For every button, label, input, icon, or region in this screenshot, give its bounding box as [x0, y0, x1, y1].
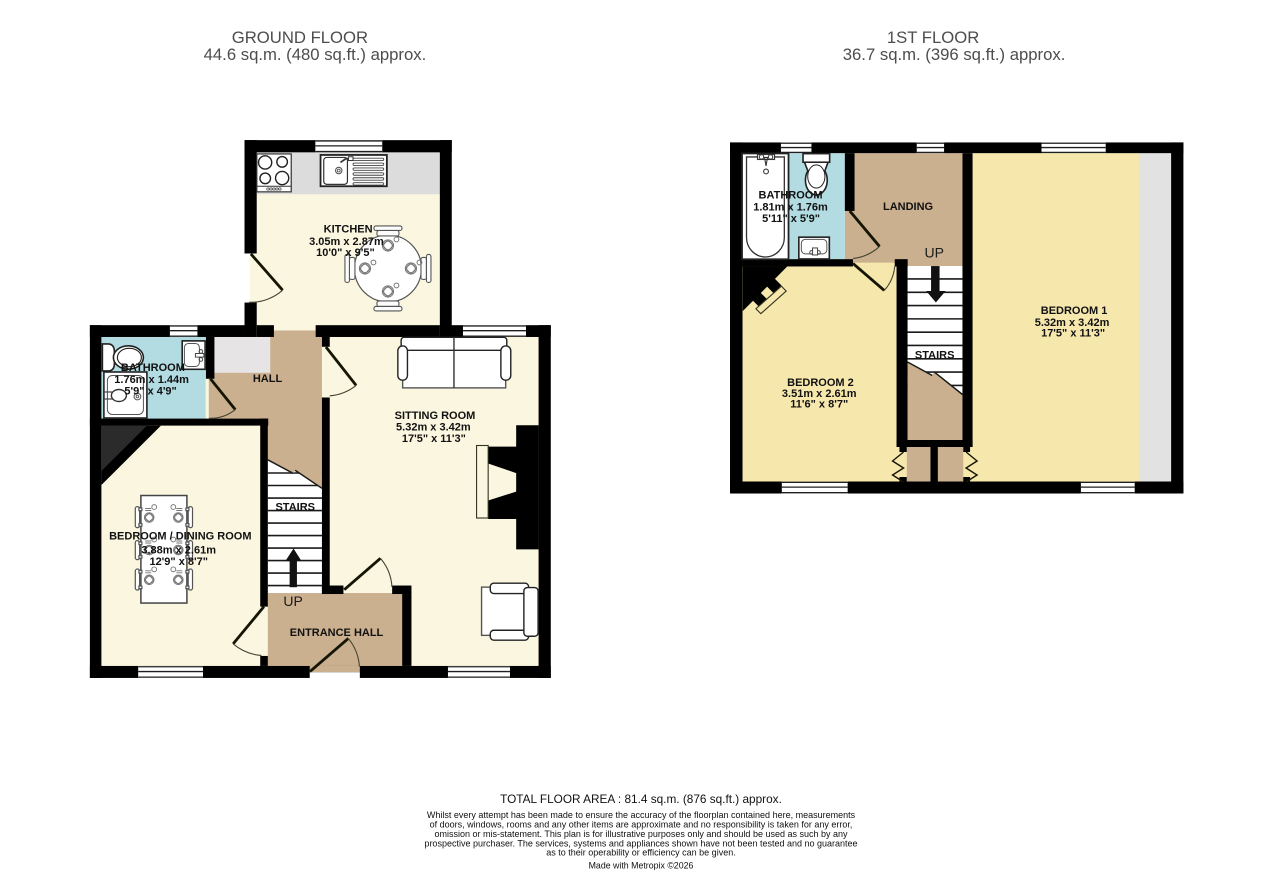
svg-text:STAIRS: STAIRS [275, 502, 315, 514]
svg-text:SITTING ROOM: SITTING ROOM [395, 410, 476, 422]
svg-text:17'5" x 11'3": 17'5" x 11'3" [1041, 328, 1105, 340]
svg-text:BATHROOM: BATHROOM [759, 190, 823, 202]
svg-text:5.32m x 3.42m: 5.32m x 3.42m [396, 422, 471, 434]
svg-text:17'5" x 11'3": 17'5" x 11'3" [402, 433, 466, 445]
svg-text:STAIRS: STAIRS [915, 349, 955, 361]
svg-text:3.88m x 2.61m: 3.88m x 2.61m [141, 544, 216, 556]
svg-text:BATHROOM: BATHROOM [121, 362, 185, 374]
svg-text:KITCHEN: KITCHEN [324, 223, 373, 235]
svg-text:Made with Metropix ©2026: Made with Metropix ©2026 [589, 861, 694, 870]
svg-text:ENTRANCE HALL: ENTRANCE HALL [290, 627, 384, 639]
svg-text:36.7 sq.m. (396 sq.ft.) approx: 36.7 sq.m. (396 sq.ft.) approx. [843, 45, 1066, 64]
svg-text:1.81m x 1.76m: 1.81m x 1.76m [753, 202, 828, 214]
svg-text:44.6 sq.m. (480 sq.ft.) approx: 44.6 sq.m. (480 sq.ft.) approx. [204, 45, 427, 64]
svg-text:5'9" x 4'9": 5'9" x 4'9" [124, 385, 176, 397]
svg-text:UP: UP [283, 593, 302, 609]
svg-text:12'9" x 8'7": 12'9" x 8'7" [149, 556, 207, 568]
svg-text:BEDROOM / DINING ROOM: BEDROOM / DINING ROOM [109, 530, 251, 542]
svg-text:UP: UP [925, 244, 944, 260]
svg-text:5'11" x 5'9": 5'11" x 5'9" [762, 213, 820, 225]
svg-text:LANDING: LANDING [883, 201, 933, 213]
svg-text:1.76m x 1.44m: 1.76m x 1.44m [114, 374, 189, 386]
svg-text:11'6" x 8'7": 11'6" x 8'7" [790, 399, 848, 411]
svg-text:10'0" x 9'5": 10'0" x 9'5" [316, 247, 374, 259]
svg-text:BEDROOM 1: BEDROOM 1 [1041, 305, 1108, 317]
svg-text:TOTAL FLOOR AREA : 81.4 sq.m.: TOTAL FLOOR AREA : 81.4 sq.m. (876 sq.ft… [500, 792, 782, 806]
svg-text:HALL: HALL [253, 373, 283, 385]
svg-text:as to their operability or eff: as to their operability or efficiency ca… [546, 848, 735, 858]
